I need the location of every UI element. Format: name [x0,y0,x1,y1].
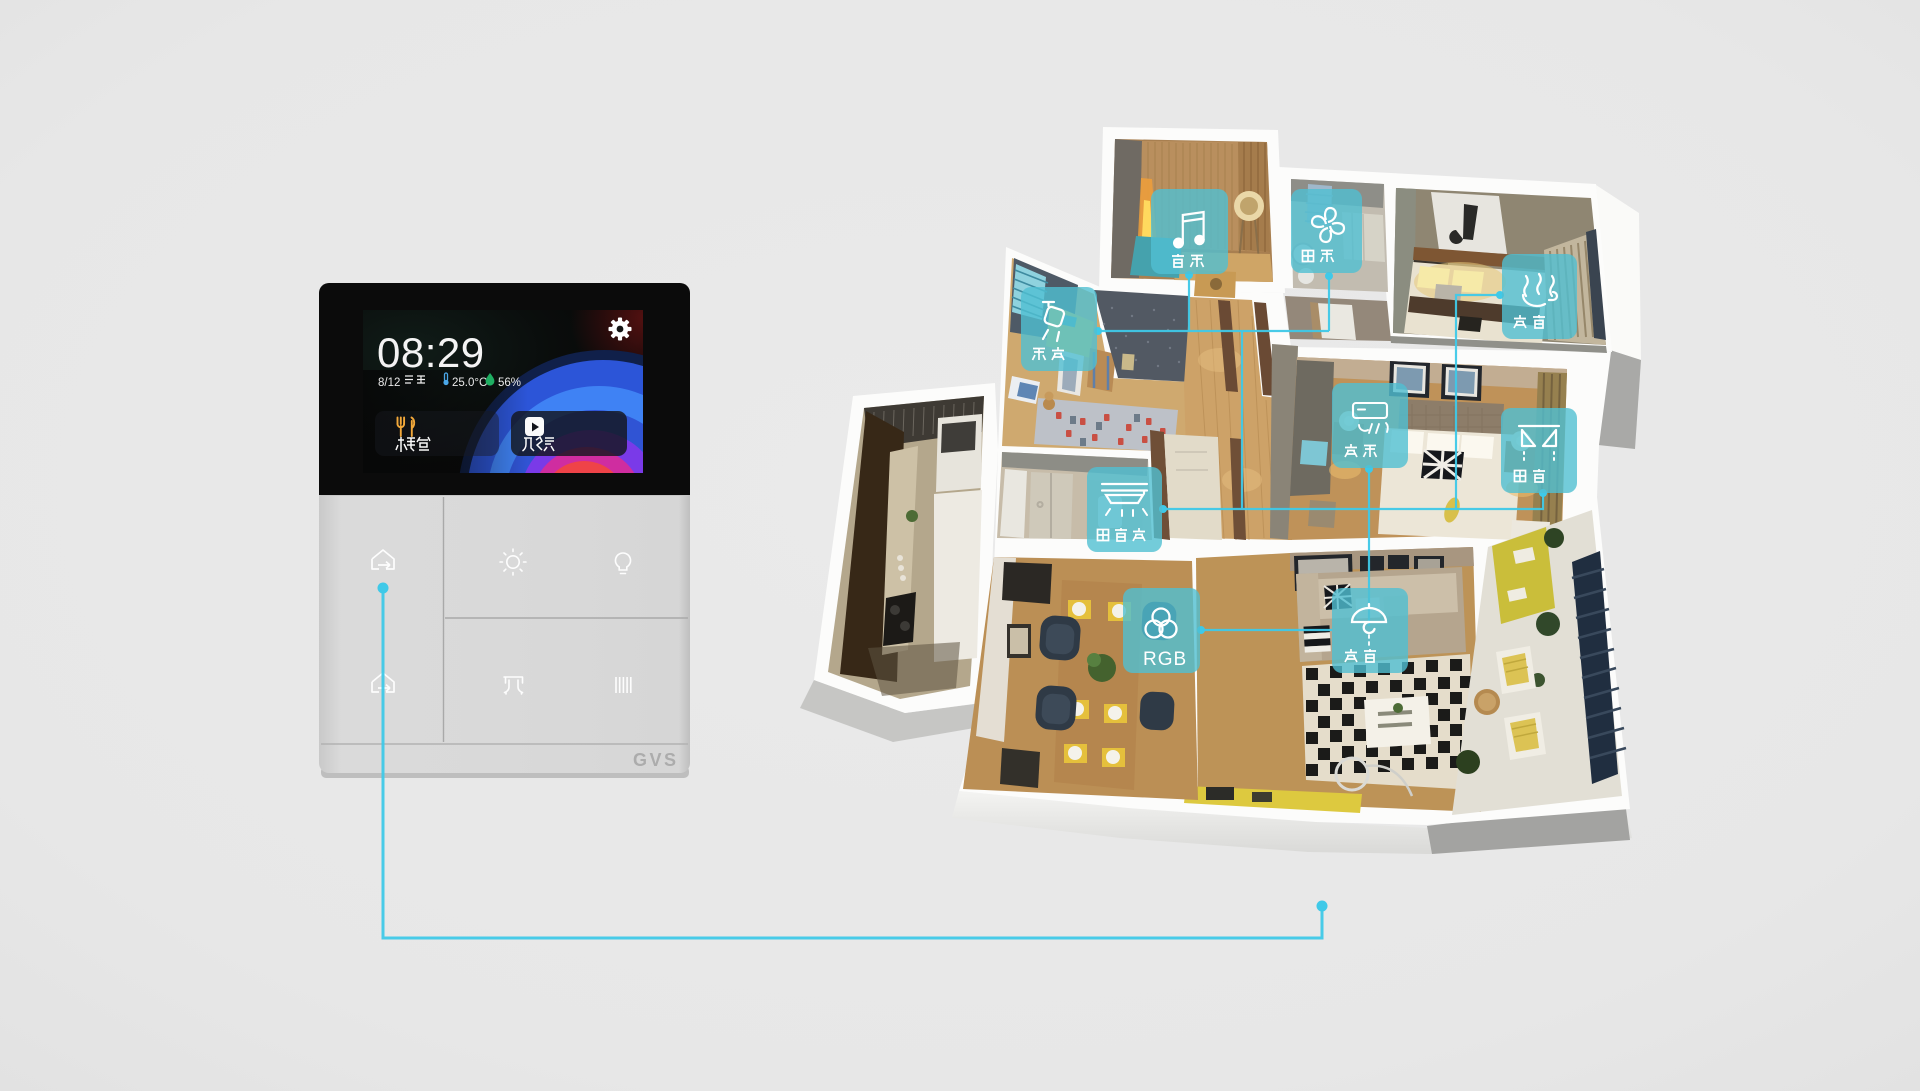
svg-text:56%: 56% [498,377,521,389]
svg-text:25.0°C: 25.0°C [452,377,487,389]
svg-text:GVS: GVS [633,750,679,770]
svg-text:8/12: 8/12 [378,377,400,389]
svg-text:RGB: RGB [1143,649,1187,670]
svg-text:08:29: 08:29 [377,329,485,376]
